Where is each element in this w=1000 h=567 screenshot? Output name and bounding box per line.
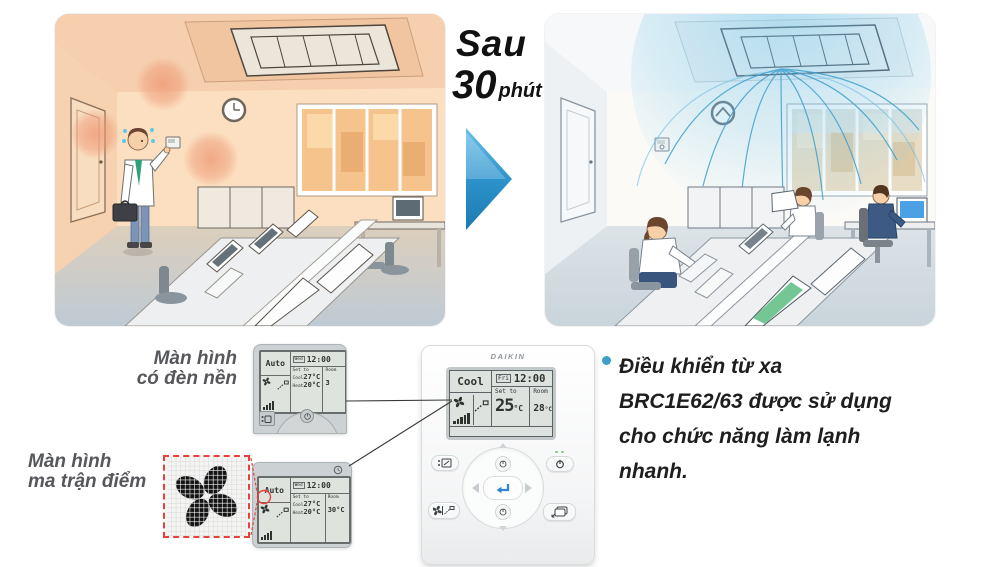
right-arrow-icon (525, 483, 532, 493)
dot-matrix-remote-lcd: Auto (257, 476, 351, 544)
promo-infographic: Sau 30 phút (0, 0, 1000, 567)
down-arrow-icon (499, 526, 507, 531)
room-label: Room (328, 495, 349, 500)
time-text: 12:00 (307, 355, 331, 364)
mode-text: Auto (261, 352, 290, 376)
daikin-logo: DAIKIN (422, 352, 594, 361)
stacked-pages-icon (551, 506, 569, 518)
pages-button (543, 503, 576, 521)
room-temp: 30°C (328, 506, 349, 514)
fan-swing-icon (433, 505, 455, 516)
fan-up-button (495, 456, 511, 472)
cabinet (688, 187, 784, 228)
day-text: Fri (496, 374, 511, 383)
fan-button-icon (499, 460, 507, 468)
door (561, 98, 595, 222)
swing-icon (474, 400, 489, 413)
power-icon (555, 459, 565, 469)
main-remote-lcd: Cool (446, 367, 556, 440)
dot-matrix-remote-photo: Auto (252, 462, 352, 548)
fan-down-button (495, 504, 511, 520)
bullet-icon (602, 356, 611, 365)
cool-room-illustration (545, 14, 935, 326)
cool-room-scene (545, 14, 935, 326)
lcd-status-strip (450, 426, 552, 436)
transition-unit: phút (499, 81, 542, 103)
room-label: Room (325, 368, 345, 373)
pixel-fan-icon (165, 457, 248, 536)
hot-room-scene (55, 14, 445, 326)
hot-room-illustration (55, 14, 445, 326)
main-remote-controller: DAIKIN Cool (421, 345, 595, 565)
fan-icon (262, 377, 271, 386)
backlit-remote-lcd: Auto (259, 350, 347, 414)
dot-matrix-display-label: Màn hình ma trận điểm (28, 452, 178, 492)
ac-cassette-unit (231, 25, 399, 76)
sweat-drop (123, 129, 127, 133)
swing-icon (277, 380, 289, 391)
power-led (555, 451, 558, 453)
room-temp: 28 (533, 403, 544, 414)
enter-icon (495, 482, 511, 495)
clock-icon (333, 465, 343, 475)
heat-blob (136, 57, 190, 111)
fan-speed-bars-icon (261, 531, 272, 540)
swing-icon (276, 507, 289, 519)
fan-swing-button (428, 502, 460, 519)
fan-up-button (300, 409, 314, 423)
right-arrow (466, 128, 512, 230)
day-text: Wed (293, 482, 305, 489)
fan-speed-bars-icon (453, 413, 470, 424)
heat-blob (183, 131, 239, 187)
transition-number: 30 (452, 67, 497, 103)
fan-button-icon (499, 508, 507, 516)
feature-note: Điều khiển từ xa BRC1E62/63 được sử dụng… (602, 350, 894, 489)
menu-icon (437, 458, 453, 468)
set-temp: 25 (495, 396, 513, 416)
sweat-drop (122, 139, 126, 143)
transition-caption: Sau 30 phút (450, 24, 550, 103)
enter-button (483, 476, 523, 500)
power-button (546, 456, 574, 472)
fan-speed-bars-icon (263, 401, 274, 410)
wall-clock (223, 99, 245, 121)
up-arrow-icon (499, 443, 507, 448)
backlit-remote-photo: Auto (253, 344, 347, 434)
feature-note-text: Điều khiển từ xa BRC1E62/63 được sử dụng… (602, 350, 894, 489)
sweat-drop (150, 128, 154, 132)
setpoint-label: Set to (495, 388, 529, 395)
mode-text: Cool (450, 371, 491, 393)
menu-button (431, 455, 459, 471)
time-text: 12:00 (514, 373, 546, 385)
fan-icon (260, 504, 270, 514)
dot-matrix-magnifier (163, 455, 250, 538)
room-label: Room (533, 388, 552, 395)
menu-button (259, 411, 275, 426)
time-text: 12:00 (307, 481, 331, 490)
wall-controller (166, 137, 180, 148)
heat-blob (70, 109, 120, 159)
sweat-drop (151, 139, 155, 143)
power-led (561, 451, 564, 453)
window (297, 104, 437, 196)
left-arrow-icon (472, 483, 479, 493)
backlit-display-label: Màn hình có đèn nền (90, 349, 237, 389)
room-temp: 3 (325, 379, 345, 387)
transition-word: Sau (450, 24, 550, 65)
mode-text: Auto (259, 478, 290, 503)
cabinet (198, 187, 294, 228)
fan-icon (453, 396, 465, 408)
day-text: Wed (293, 356, 305, 363)
